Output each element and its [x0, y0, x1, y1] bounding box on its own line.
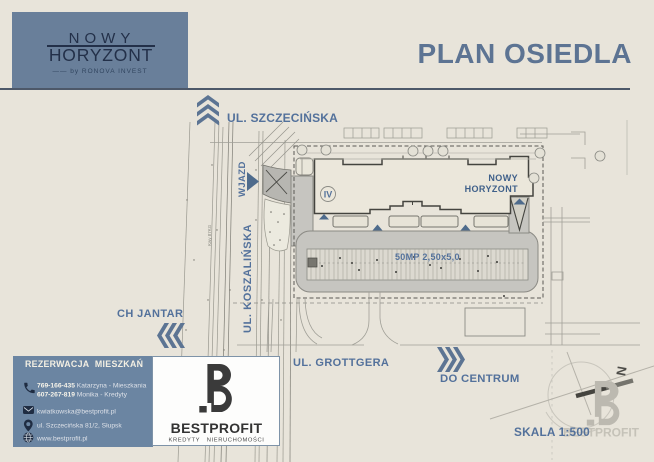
svg-text:KREDYTY NIERUCHOMOŚCI: KREDYTY NIERUCHOMOŚCI — [168, 435, 264, 443]
svg-text:ul. Szczecińska 81/2, Słupsk: ul. Szczecińska 81/2, Słupsk — [37, 423, 122, 430]
svg-text:769-166-435 Katarzyna - Mieszk: 769-166-435 Katarzyna - Mieszkania — [37, 383, 147, 390]
svg-text:UL. GROTTGERA: UL. GROTTGERA — [293, 357, 389, 369]
svg-text:SKALA 1:500: SKALA 1:500 — [514, 425, 590, 439]
svg-text:N: N — [613, 365, 629, 377]
svg-text:BESTPROFIT: BESTPROFIT — [170, 420, 262, 436]
svg-text:kwiatkowska@bestprofit.pl: kwiatkowska@bestprofit.pl — [37, 409, 116, 416]
svg-text:DO CENTRUM: DO CENTRUM — [440, 373, 520, 385]
svg-text:UL. SZCZECIŃSKA: UL. SZCZECIŃSKA — [227, 110, 338, 125]
svg-text:WJAZD: WJAZD — [237, 161, 248, 197]
svg-text:HORYZONT: HORYZONT — [465, 184, 518, 194]
svg-text:CH JANTAR: CH JANTAR — [117, 308, 183, 320]
svg-text:607-267-819 Monika - Kredyty: 607-267-819 Monika - Kredyty — [37, 392, 128, 399]
svg-text:www.bestprofit.pl: www.bestprofit.pl — [36, 436, 88, 443]
svg-text:IV: IV — [324, 190, 333, 200]
svg-text:Kwy 87KG: Kwy 87KG — [207, 224, 212, 246]
svg-text:UL. KOSZALIŃSKA: UL. KOSZALIŃSKA — [241, 224, 254, 333]
svg-text:NOWY: NOWY — [488, 173, 518, 183]
svg-text:50MP 2,50x5,0: 50MP 2,50x5,0 — [395, 252, 460, 262]
